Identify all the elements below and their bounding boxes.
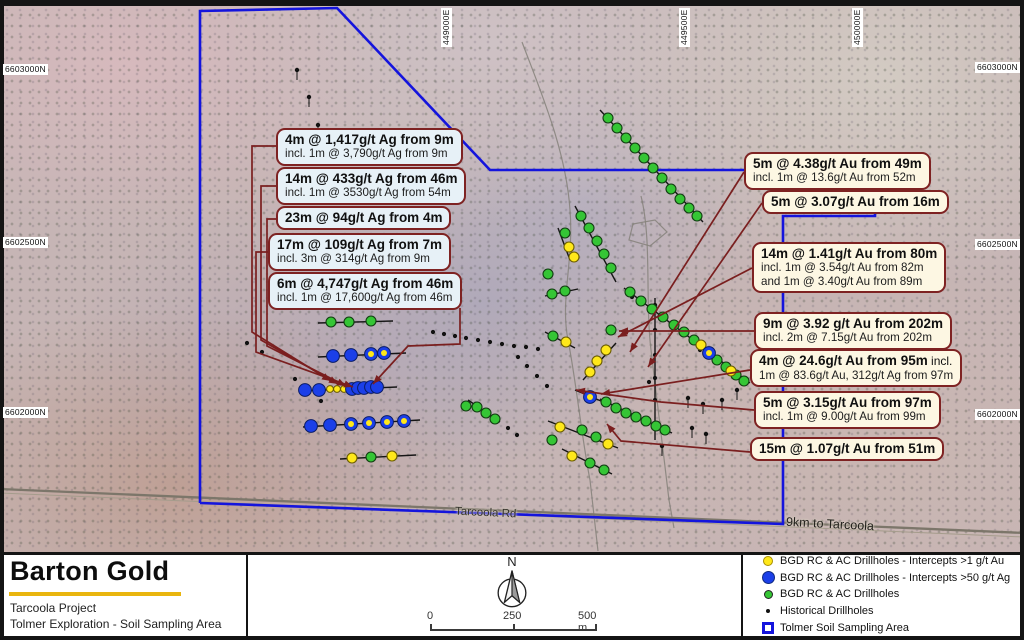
bgd-drillhole — [560, 286, 570, 296]
historical-drillhole — [500, 342, 504, 346]
grid-label-northing: 6602000N — [975, 409, 1020, 420]
assay-callout-ag: 4m @ 1,417g/t Ag from 9mincl. 1m @ 3,790… — [276, 128, 463, 166]
au-intercept-drillhole — [603, 439, 613, 449]
scale-tick — [513, 624, 515, 630]
bgd-drillhole — [366, 452, 376, 462]
grid-label-northing: 6603000N — [975, 62, 1020, 73]
historical-drillhole — [515, 433, 519, 437]
bgd-drillhole — [636, 296, 646, 306]
au-intercept-drillhole — [327, 386, 334, 393]
scale-tick — [430, 624, 432, 630]
bgd-drillhole — [547, 435, 557, 445]
grid-label-northing: 6602000N — [3, 407, 48, 418]
frame-border — [0, 0, 1024, 6]
bgd-drillhole — [630, 143, 640, 153]
grid-label-northing: 6602500N — [3, 237, 48, 248]
au-intercept-drillhole — [334, 386, 341, 393]
au-intercept-drillhole — [601, 345, 611, 355]
au-intercept-drillhole — [585, 367, 595, 377]
north-arrow: N — [488, 555, 536, 616]
logo-underline — [9, 592, 181, 596]
bgd-drillhole — [657, 173, 667, 183]
frame-border — [0, 636, 1024, 640]
grid-label-easting: 449000E — [441, 8, 452, 47]
historical-drillhole — [525, 364, 529, 368]
au-intercept-drillhole — [555, 422, 565, 432]
assay-callout-ag: 14m @ 433g/t Ag from 46mincl. 1m @ 3530g… — [276, 167, 466, 205]
historical-drillhole — [545, 384, 549, 388]
bgd-drillhole — [660, 425, 670, 435]
bgd-drillhole — [675, 194, 685, 204]
assay-callout-ag: 17m @ 109g/t Ag from 7mincl. 3m @ 314g/t… — [268, 233, 451, 271]
bgd-drillhole — [481, 408, 491, 418]
scale-tick-label: 0 — [427, 610, 433, 622]
bgd-drillhole — [621, 133, 631, 143]
bgd-drillhole — [641, 416, 651, 426]
historical-drillhole-icon — [766, 609, 770, 613]
historical-drillhole — [735, 388, 739, 392]
historical-drillhole — [524, 345, 528, 349]
au-intercept-drillhole — [567, 451, 577, 461]
ag-intercept-drillhole-icon — [762, 571, 775, 584]
bgd-drillhole — [461, 401, 471, 411]
ag-intercept-drillhole — [305, 420, 318, 433]
legend-item: BGD RC & AC Drillholes - Intercepts >1 g… — [756, 553, 1010, 570]
historical-drillhole — [442, 332, 446, 336]
historical-drillhole — [647, 380, 651, 384]
ag-intercept-drillhole — [324, 419, 337, 432]
assay-callout-au: 4m @ 24.6g/t Au from 95m incl.1m @ 83.6g… — [750, 349, 962, 387]
company-logo: Barton Gold — [10, 556, 169, 587]
map-figure: Tarcoola Rd 9km to Tarcoola 4m @ 1,417g/… — [0, 0, 1024, 640]
soil-sampling-area-icon — [762, 622, 774, 634]
ag-intercept-drillhole — [313, 384, 326, 397]
assay-callout-au: 9m @ 3.92 g/t Au from 202mincl. 2m @ 7.1… — [754, 312, 952, 350]
historical-drillhole — [720, 398, 724, 402]
au-intercept-core — [366, 420, 372, 426]
track-line — [629, 220, 667, 246]
bgd-drillhole — [548, 331, 558, 341]
au-intercept-drillhole-icon — [763, 556, 773, 566]
assay-callout-au: 14m @ 1.41g/t Au from 80mincl. 1m @ 3.54… — [752, 242, 946, 293]
bgd-drillhole — [648, 163, 658, 173]
bgd-drillhole — [606, 325, 616, 335]
bgd-drillhole — [543, 269, 553, 279]
track-line — [522, 42, 598, 551]
assay-callout-ag: 23m @ 94g/t Ag from 4m — [276, 206, 451, 230]
callout-leader-line — [373, 308, 460, 384]
scale-bar: 0 250 500 m — [430, 610, 597, 634]
bgd-drillhole — [631, 412, 641, 422]
track-line — [641, 196, 674, 528]
historical-drillhole — [295, 68, 299, 72]
legend-item: BGD RC & AC Drillholes - Intercepts >50 … — [756, 570, 1010, 587]
historical-drillhole — [653, 376, 657, 380]
historical-drillhole — [245, 341, 249, 345]
historical-drillhole — [476, 338, 480, 342]
historical-drillhole — [536, 347, 540, 351]
bgd-drillhole — [625, 287, 635, 297]
au-intercept-core — [587, 394, 593, 400]
au-intercept-drillhole — [564, 242, 574, 252]
au-intercept-drillhole — [561, 337, 571, 347]
assay-callout-au: 15m @ 1.07g/t Au from 51m — [750, 437, 944, 461]
footer-divider — [246, 552, 248, 636]
bgd-drillhole — [490, 414, 500, 424]
au-intercept-core — [384, 419, 390, 425]
bgd-drillhole — [621, 408, 631, 418]
historical-drillhole — [512, 344, 516, 348]
bgd-drillhole — [576, 211, 586, 221]
grid-label-easting: 450000E — [852, 8, 863, 47]
bgd-drillhole — [585, 458, 595, 468]
compass-icon — [492, 569, 532, 611]
bgd-drillhole — [599, 465, 609, 475]
historical-drillhole — [453, 334, 457, 338]
legend-item: Historical Drillholes — [756, 603, 1010, 620]
bgd-drillhole — [560, 228, 570, 238]
historical-drillhole — [506, 426, 510, 430]
legend: BGD RC & AC Drillholes - Intercepts >1 g… — [756, 553, 1010, 636]
au-intercept-core — [706, 350, 712, 356]
bgd-drillhole — [606, 263, 616, 273]
assay-callout-au: 5m @ 4.38g/t Au from 49mincl. 1m @ 13.6g… — [744, 152, 931, 190]
historical-drillhole — [316, 123, 320, 127]
historical-drillhole — [431, 330, 435, 334]
scale-tick — [595, 624, 597, 630]
bgd-drillhole — [344, 317, 354, 327]
map-subtitle: Tolmer Exploration - Soil Sampling Area — [10, 617, 221, 631]
historical-drillhole — [307, 95, 311, 99]
project-title: Tarcoola Project — [10, 601, 96, 615]
callout-leader-line — [607, 424, 750, 452]
bgd-drillhole — [547, 289, 557, 299]
bgd-drillhole — [599, 249, 609, 259]
scale-tick-label: 250 — [503, 610, 521, 622]
leader-arrowhead — [630, 342, 638, 352]
assay-callout-ag: 6m @ 4,747g/t Ag from 46mincl. 1m @ 17,6… — [268, 272, 462, 310]
ag-intercept-drillhole — [327, 350, 340, 363]
bgd-drillhole — [612, 123, 622, 133]
callout-leader-line — [601, 370, 750, 394]
bgd-drillhole — [366, 316, 376, 326]
historical-drillhole — [516, 355, 520, 359]
historical-drillhole — [704, 432, 708, 436]
assay-callout-au: 5m @ 3.07g/t Au from 16m — [762, 190, 949, 214]
bgd-drillhole-icon — [764, 590, 773, 599]
au-intercept-drillhole — [347, 453, 357, 463]
bgd-drillhole — [603, 113, 613, 123]
ag-intercept-drillhole — [345, 349, 358, 362]
ag-intercept-drillhole — [299, 384, 312, 397]
bgd-drillhole — [684, 203, 694, 213]
bgd-drillhole — [592, 236, 602, 246]
au-intercept-core — [401, 418, 407, 424]
historical-drillhole — [690, 426, 694, 430]
historical-drillhole — [535, 374, 539, 378]
au-intercept-drillhole — [592, 356, 602, 366]
bgd-drillhole — [666, 184, 676, 194]
historical-drillhole — [319, 399, 323, 403]
bgd-drillhole — [611, 403, 621, 413]
au-intercept-drillhole — [387, 451, 397, 461]
grid-label-northing: 6602500N — [975, 239, 1020, 250]
bgd-drillhole — [577, 425, 587, 435]
grid-label-northing: 6603000N — [3, 64, 48, 75]
bgd-drillhole — [601, 397, 611, 407]
au-intercept-drillhole — [569, 252, 579, 262]
historical-drillhole — [488, 340, 492, 344]
bgd-drillhole — [584, 223, 594, 233]
bgd-drillhole — [692, 211, 702, 221]
bgd-drillhole — [679, 327, 689, 337]
au-intercept-core — [368, 351, 374, 357]
bgd-drillhole — [739, 376, 749, 386]
au-intercept-drillhole — [726, 366, 736, 376]
bgd-drillhole — [639, 153, 649, 163]
map-canvas: Tarcoola Rd 9km to Tarcoola 4m @ 1,417g/… — [0, 0, 1024, 552]
au-intercept-core — [348, 421, 354, 427]
legend-item: BGD RC & AC Drillholes — [756, 586, 1010, 603]
frame-border — [0, 0, 4, 640]
legend-item: Tolmer Soil Sampling Area — [756, 619, 1010, 636]
footer-divider — [741, 552, 743, 636]
frame-border — [1020, 0, 1024, 640]
historical-drillhole — [464, 336, 468, 340]
au-intercept-core — [381, 350, 387, 356]
historical-drillhole — [686, 396, 690, 400]
ag-intercept-drillhole — [371, 381, 384, 394]
north-label: N — [488, 555, 536, 569]
bgd-drillhole — [591, 432, 601, 442]
grid-label-easting: 449500E — [679, 8, 690, 47]
assay-callout-au: 5m @ 3.15g/t Au from 97mincl. 1m @ 9.00g… — [754, 391, 941, 429]
historical-drillhole — [293, 377, 297, 381]
bgd-drillhole — [326, 317, 336, 327]
bgd-drillhole — [472, 402, 482, 412]
